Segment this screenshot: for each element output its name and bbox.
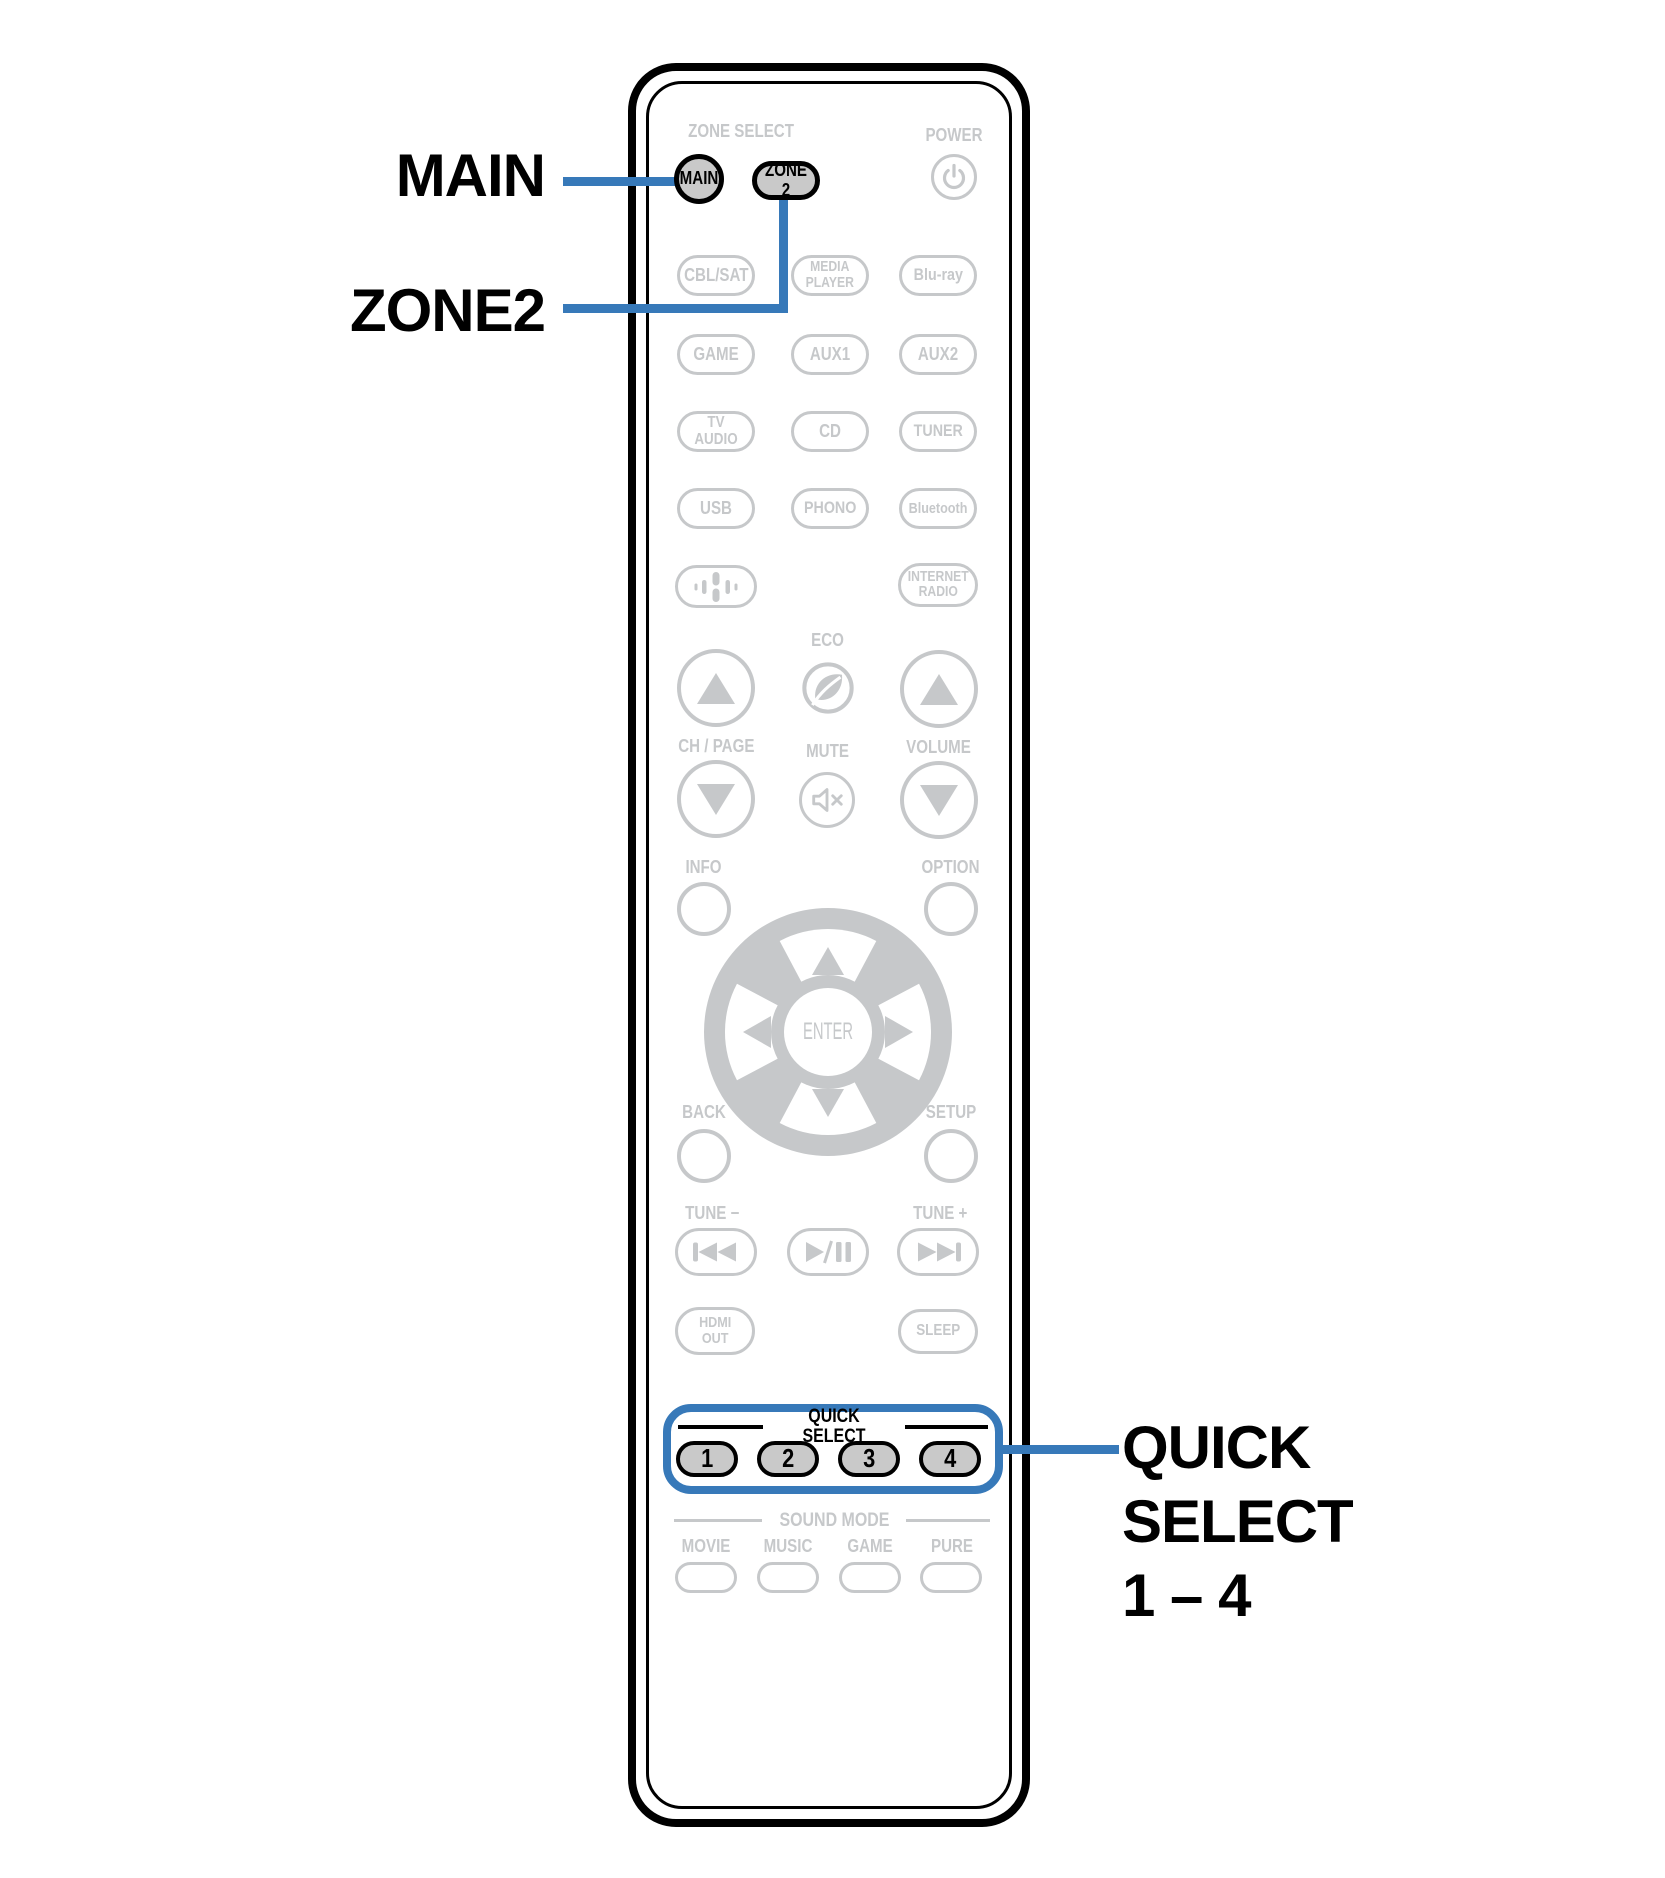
back-button[interactable] [677,1129,731,1183]
audio-wave-icon [688,571,744,603]
skip-forward-icon [910,1238,966,1266]
option-label: OPTION [911,859,991,877]
volume-down-button[interactable] [900,761,978,839]
eco-button[interactable] [800,660,856,716]
sound-mode-header: SOUND MODE [766,1512,902,1530]
diagram-canvas: MAIN ZONE2 ZONE SELECT MAIN ZONE 2 POWER… [0,0,1665,1878]
source-button-blu-ray[interactable]: Blu-ray [899,255,977,296]
quick-select-header-dash-left [678,1425,763,1429]
volume-label: VOLUME [894,739,984,757]
back-label: BACK [669,1104,739,1122]
quick-select-callout-line [999,1445,1119,1454]
volume-up-button[interactable] [900,650,978,728]
eco-label: ECO [798,632,858,650]
quick-select-callout-label: QUICK SELECT 1 – 4 [1122,1411,1462,1633]
skip-forward-button[interactable] [897,1228,979,1276]
sleep-button[interactable]: SLEEP [898,1309,978,1354]
source-button-tv-audio[interactable]: TV AUDIO [677,411,755,452]
sound-mode-header-dash-left [674,1519,762,1522]
quick-select-header-dash-right [905,1425,988,1429]
sound-mode-music-label: MUSIC [753,1538,823,1556]
source-button-game[interactable]: GAME [677,334,755,375]
power-button[interactable] [931,154,977,200]
zone2-callout-line-horizontal [563,304,787,313]
source-button-tuner[interactable]: TUNER [899,411,977,452]
quick-select-4-button[interactable]: 4 [919,1441,981,1477]
power-icon [938,161,970,193]
zone-select-header: ZONE SELECT [671,123,811,141]
channel-page-down-button[interactable] [677,760,755,838]
sound-mode-music-button[interactable] [757,1562,819,1593]
source-button-cbl-sat[interactable]: CBL/SAT [677,255,755,296]
tune-minus-label: TUNE − [662,1205,762,1223]
source-button-media-player[interactable]: MEDIA PLAYER [791,255,869,296]
zone2-callout-line-vertical [779,197,788,313]
sound-mode-movie-button[interactable] [675,1562,737,1593]
channel-page-up-button[interactable] [677,649,755,727]
sound-mode-pure-label: PURE [917,1538,987,1556]
source-button-cd[interactable]: CD [791,411,869,452]
source-button-aux2[interactable]: AUX2 [899,334,977,375]
up-arrow-icon [697,673,735,704]
up-arrow-icon [920,674,958,705]
source-button-phono[interactable]: PHONO [791,488,869,529]
hdmi-out-button[interactable]: HDMI OUT [675,1307,755,1355]
mute-button[interactable] [799,772,855,828]
skip-back-icon [688,1238,744,1266]
sound-mode-header-dash-right [906,1519,990,1522]
down-arrow-icon [697,784,735,815]
eco-leaf-icon [800,660,856,716]
main-zone-button[interactable]: MAIN [674,154,724,204]
info-label: INFO [673,859,733,877]
enter-label: ENTER [803,1018,853,1045]
down-arrow-icon [920,785,958,816]
main-callout-label: MAIN [295,140,545,212]
mute-label: MUTE [792,743,862,761]
source-button-usb[interactable]: USB [677,488,755,529]
setup-button[interactable] [924,1129,978,1183]
skip-back-button[interactable] [675,1228,757,1276]
music-service-button[interactable] [675,565,757,608]
quick-select-1-button[interactable]: 1 [676,1441,738,1477]
setup-label: SETUP [911,1104,991,1122]
main-callout-line [563,177,681,186]
quick-select-2-button[interactable]: 2 [757,1441,819,1477]
sound-mode-pure-button[interactable] [920,1562,982,1593]
quick-select-header: QUICK SELECT [766,1418,902,1436]
zone2-callout-label: ZONE2 [295,275,545,347]
ch-page-label: CH / PAGE [656,738,776,756]
mute-icon [808,781,846,819]
source-button-bluetooth[interactable]: Bluetooth [899,488,977,529]
sound-mode-movie-label: MOVIE [671,1538,741,1556]
tune-plus-label: TUNE + [890,1205,990,1223]
play-pause-button[interactable] [787,1228,869,1276]
internet-radio-button[interactable]: INTERNET RADIO [898,563,978,607]
source-button-aux1[interactable]: AUX1 [791,334,869,375]
zone2-zone-button[interactable]: ZONE 2 [752,161,820,200]
play-pause-icon [800,1238,856,1266]
power-label: POWER [914,127,994,145]
sound-mode-game-label: GAME [835,1538,905,1556]
sound-mode-game-button[interactable] [839,1562,901,1593]
quick-select-3-button[interactable]: 3 [838,1441,900,1477]
